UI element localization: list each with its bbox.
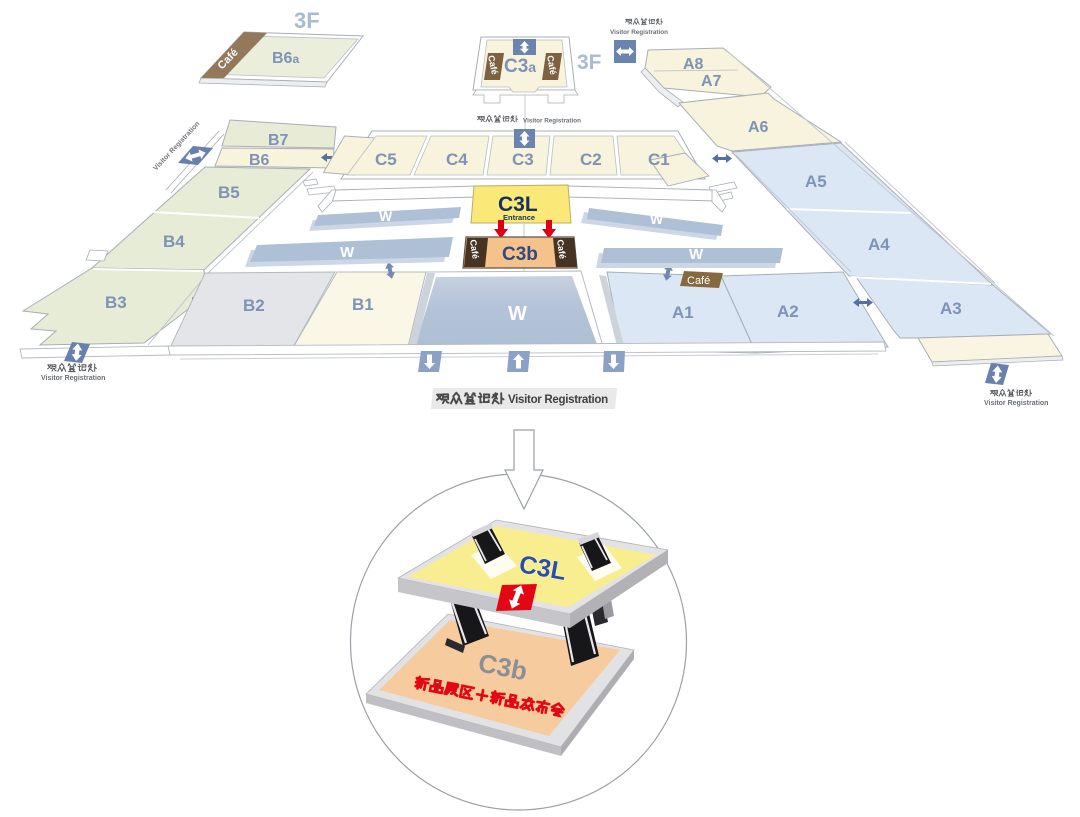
svg-text:A8: A8 <box>683 56 704 73</box>
svg-text:Visitor Registration: Visitor Registration <box>41 375 105 382</box>
svg-text:C5: C5 <box>375 150 397 169</box>
svg-text:B7: B7 <box>268 132 289 149</box>
svg-text:W: W <box>689 246 704 263</box>
svg-text:A6: A6 <box>748 119 769 136</box>
svg-text:A7: A7 <box>701 73 722 90</box>
svg-text:B6a: B6a <box>272 50 299 67</box>
svg-text:B5: B5 <box>218 183 240 202</box>
svg-text:A4: A4 <box>868 235 890 254</box>
svg-text:Visitor Registration: Visitor Registration <box>984 400 1048 407</box>
svg-text:B2: B2 <box>243 296 265 315</box>
svg-text:C3b: C3b <box>502 244 538 265</box>
svg-text:Visitor Registration: Visitor Registration <box>523 118 581 125</box>
svg-text:W: W <box>340 244 355 261</box>
svg-text:3F: 3F <box>294 8 320 33</box>
svg-text:W: W <box>379 208 393 224</box>
svg-text:A2: A2 <box>777 302 799 321</box>
svg-text:A3: A3 <box>940 299 962 318</box>
svg-text:C4: C4 <box>446 150 468 169</box>
svg-text:Visitor Registration: Visitor Registration <box>610 29 668 36</box>
svg-text:C3a: C3a <box>504 56 536 77</box>
svg-text:W: W <box>650 211 664 227</box>
svg-text:Visitor Registration: Visitor Registration <box>508 394 608 406</box>
svg-text:3F: 3F <box>577 51 602 74</box>
svg-text:A1: A1 <box>672 303 694 322</box>
svg-text:B6: B6 <box>249 152 270 169</box>
svg-text:B1: B1 <box>352 295 374 314</box>
svg-text:B4: B4 <box>163 232 185 251</box>
svg-text:Entrance: Entrance <box>503 213 535 222</box>
svg-text:C3: C3 <box>512 150 534 169</box>
svg-text:W: W <box>508 303 527 325</box>
svg-text:C2: C2 <box>580 150 602 169</box>
svg-text:A5: A5 <box>805 172 827 191</box>
svg-text:B3: B3 <box>105 293 127 312</box>
svg-text:Café: Café <box>687 275 710 287</box>
svg-text:C1: C1 <box>648 150 670 169</box>
